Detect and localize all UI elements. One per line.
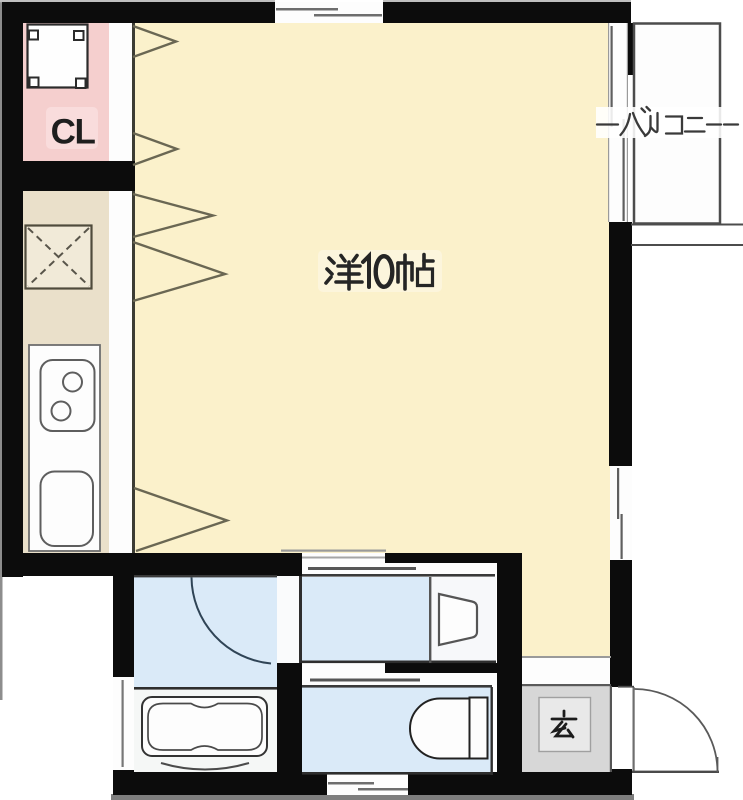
svg-text:CL: CL: [51, 113, 96, 152]
